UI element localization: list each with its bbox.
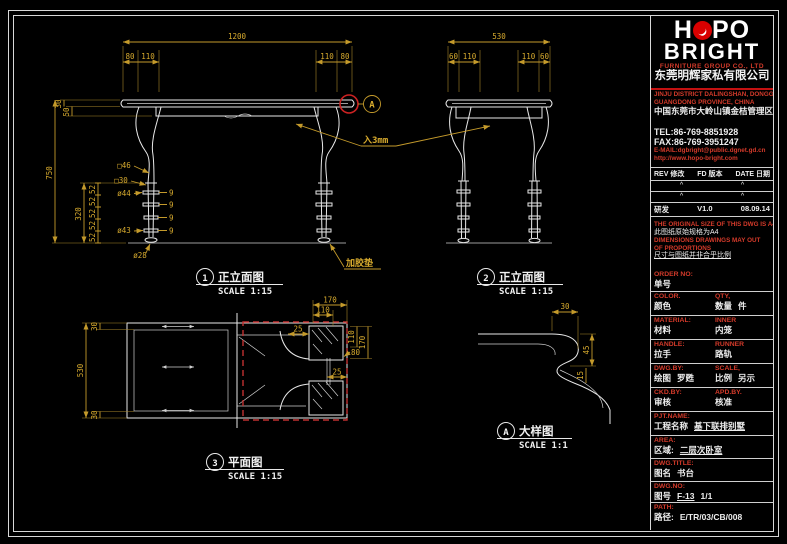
- view-scale: SCALE 1:15: [499, 287, 553, 297]
- runner-label-cn: 路轨: [715, 349, 770, 359]
- scale-label: SCALE,: [715, 365, 770, 373]
- note-line: THE ORIGINAL SIZE OF THIS DWG IS A4: [654, 221, 770, 229]
- dwg-title-label-cn: 图名: [654, 468, 671, 478]
- fax: FAX:86-769-3951247: [654, 137, 770, 147]
- view-title: 正立面图: [499, 270, 545, 284]
- cad-sheet: 1200 80 110 110 80 30 50 750 320 52 52 5…: [0, 0, 787, 544]
- order-no-field: ORDER NO: 单号: [651, 270, 773, 292]
- handle-label-cn: 拉手: [654, 349, 709, 359]
- dim-text: 110: [320, 52, 334, 61]
- dim-text: 30: [90, 322, 99, 332]
- runner-field: RUNNER 路轨: [712, 340, 773, 363]
- revision-empty-row: ^ ^: [651, 181, 773, 192]
- dwg-by-field: DWG.BY: 绘图罗甦: [651, 364, 712, 387]
- dwgby-scale-row: DWG.BY: 绘图罗甦 SCALE, 比例另示: [651, 364, 773, 388]
- view-title: 平面图: [228, 455, 263, 469]
- dim-text: 52: [88, 221, 97, 230]
- note-inset-3mm: 入3mm: [362, 135, 389, 146]
- handle-field: HANDLE: 拉手: [651, 340, 712, 363]
- dim-text: 80: [351, 348, 361, 357]
- path-value: E/TR/03/CB/008: [680, 512, 742, 522]
- side-elevation-view: 530 60 110 110 60 2 正立面图 SCALE 1:15: [446, 32, 563, 297]
- view-number: 3: [212, 459, 217, 469]
- dwg-by-value: 罗甦: [677, 373, 694, 383]
- dim-text: 30: [560, 302, 570, 311]
- address-en-line2: GUANGDONG PROVINCE, CHINA: [654, 99, 770, 107]
- order-no-label-cn: 单号: [654, 279, 770, 289]
- view-scale: SCALE 1:15: [228, 472, 282, 482]
- dwg-by-label: DWG.BY:: [654, 365, 709, 373]
- runner-label: RUNNER: [715, 341, 770, 349]
- scale-label-cn: 比例: [715, 373, 732, 383]
- dim-text: 110: [463, 52, 477, 61]
- path-label-cn: 路径:: [654, 512, 674, 522]
- dim-text: 9: [169, 214, 174, 223]
- dim-text: 52: [88, 185, 97, 194]
- dim-text: 9: [169, 227, 174, 236]
- color-field: COLOR. 颜色: [651, 292, 712, 315]
- detail-circle-red: [340, 95, 358, 113]
- callout-square30: □30: [114, 176, 128, 185]
- dim-text: 1200: [228, 32, 247, 41]
- dim-text: 50: [62, 107, 71, 117]
- material-inner-row: MATERIAL: 材料 INNER 内笼: [651, 316, 773, 340]
- callout-dia28: ø28: [133, 251, 147, 260]
- dim-text: 530: [492, 32, 506, 41]
- dim-text: 110: [316, 306, 330, 315]
- revision-table: REV 修改 FD 版本 DATE 日期 ^ ^ ^ ^ 研发 V1.0 08.…: [651, 168, 773, 220]
- qty-label-cn: 数量: [715, 301, 732, 311]
- company-logo: HPO BRIGHT FURNITURE GROUP CO., LTD 东莞明辉…: [651, 16, 773, 90]
- company-name-cn: 东莞明辉家私有限公司: [654, 70, 770, 83]
- callout-square46: □46: [117, 161, 131, 170]
- view-number: 2: [483, 274, 488, 284]
- path-field: PATH: 路径:E/TR/03/CB/008: [651, 503, 773, 530]
- inner-label-cn: 内笼: [715, 325, 770, 335]
- qty-field: QTY, 数量件: [712, 292, 773, 315]
- revision-header-date: DATE 日期: [736, 169, 770, 179]
- dim-text: 9: [169, 201, 174, 210]
- view-scale: SCALE 1:1: [519, 441, 568, 451]
- dim-text: 60: [449, 52, 459, 61]
- side-left-leg: [450, 107, 471, 243]
- detail-bubble-letter: A: [369, 101, 375, 111]
- leg-block-bottom: [309, 381, 343, 415]
- logo-subtitle: FURNITURE GROUP CO., LTD: [654, 63, 770, 70]
- ckd-by-label: CKD.BY:: [654, 389, 709, 397]
- note-line: 尺寸与图纸并非合乎比例: [654, 252, 770, 261]
- dim-text: 530: [76, 363, 85, 377]
- material-label: MATERIAL:: [654, 317, 709, 325]
- drawing-area: 1200 80 110 110 80 30 50 750 320 52 52 5…: [14, 16, 650, 530]
- company-contact: TEL:86-769-8851928 FAX:86-769-3951247 E-…: [651, 126, 773, 168]
- dim-text: 110: [141, 52, 155, 61]
- callout-dia43: ø43: [117, 226, 131, 235]
- view-scale: SCALE 1:15: [218, 287, 272, 297]
- dwg-title-field: DWG.TITLE: 图名书台: [651, 459, 773, 482]
- color-qty-row: COLOR. 颜色 QTY, 数量件: [651, 292, 773, 316]
- view-number: A: [503, 428, 509, 438]
- note-line: OF PROPORTIONS: [654, 245, 770, 253]
- project-name-label-cn: 工程名称: [654, 421, 688, 431]
- dim-text: 110: [522, 52, 536, 61]
- view-title: 正立面图: [218, 270, 264, 284]
- color-label-cn: 颜色: [654, 301, 709, 311]
- color-label: COLOR.: [654, 293, 709, 301]
- detail-region-dashed: [243, 322, 347, 420]
- address-en-line1: JINJU DISTRICT DALINGSHAN, DONGGUAN: [654, 91, 770, 99]
- dim-text: 60: [540, 52, 550, 61]
- note-line: DIMENSIONS DRAWINGS MAY OUT: [654, 237, 770, 245]
- area-field: AREA: 区域:二层次卧室: [651, 436, 773, 459]
- caret-mark: ^: [741, 192, 744, 202]
- view-title: 大样图: [519, 424, 554, 438]
- revision-entry-rev: 研发: [654, 204, 669, 215]
- note-rubber-pad: 加胶垫: [345, 257, 373, 269]
- dwg-no-field: DWG.NO: 图号F-131/1: [651, 482, 773, 503]
- inner-field: INNER 内笼: [712, 316, 773, 339]
- company-address: JINJU DISTRICT DALINGSHAN, DONGGUAN GUAN…: [651, 90, 773, 126]
- project-name-value: 基下联排别墅: [694, 421, 745, 431]
- caret-mark: ^: [680, 181, 683, 191]
- dwg-no-label-cn: 图号: [654, 491, 671, 501]
- area-value: 二层次卧室: [680, 445, 723, 455]
- ckd-by-label-cn: 审核: [654, 397, 709, 407]
- revision-entry-date: 08.09.14: [741, 204, 770, 215]
- front-left-leg: [136, 107, 161, 242]
- revision-header-rev: REV 修改: [654, 169, 684, 179]
- address-cn: 中国东莞市大岭山镇金桔管理区: [654, 106, 770, 116]
- side-right-leg: [527, 107, 548, 243]
- area-label-cn: 区域:: [654, 445, 674, 455]
- dim-text: 52: [88, 209, 97, 218]
- project-name-field: PJT.NAME: 工程名称基下联排别墅: [651, 412, 773, 436]
- ckd-by-field: CKD.BY: 审核: [651, 388, 712, 411]
- dwg-by-label-cn: 绘图: [654, 373, 671, 383]
- material-label-cn: 材料: [654, 325, 709, 335]
- apron: [156, 107, 318, 116]
- dim-text: 52: [88, 233, 97, 242]
- path-label: PATH:: [654, 504, 770, 512]
- caret-mark: ^: [680, 192, 683, 202]
- dim-text: 15: [576, 371, 585, 380]
- dim-text: 80: [340, 52, 350, 61]
- apd-by-label: APD.BY.: [715, 389, 770, 397]
- dim-text: 25: [332, 368, 341, 377]
- plan-view: 30 530 30 170 110 110 170 80 25 25 3 平面图: [76, 296, 372, 483]
- scale-value: 另示: [738, 373, 755, 383]
- inner-label: INNER: [715, 317, 770, 325]
- dim-text: 320: [74, 207, 83, 221]
- revision-empty-row: ^ ^: [651, 192, 773, 203]
- dim-text: 750: [45, 166, 54, 180]
- dim-text: 170: [323, 296, 337, 305]
- detail-view: 30 45 15 A 大样图 SCALE 1:1: [478, 302, 610, 451]
- view-number: 1: [202, 274, 207, 284]
- dim-text: 9: [169, 189, 174, 198]
- dim-text: 110: [347, 330, 356, 344]
- dim-text: 52: [88, 197, 97, 206]
- area-label: AREA:: [654, 437, 770, 445]
- dim-text: 30: [90, 410, 99, 420]
- logo-bright: BRIGHT: [654, 42, 770, 62]
- front-right-leg: [314, 107, 339, 242]
- dwg-title-label: DWG.TITLE:: [654, 460, 770, 468]
- material-field: MATERIAL: 材料: [651, 316, 712, 339]
- qty-unit: 件: [738, 301, 747, 311]
- order-no-label: ORDER NO:: [654, 271, 770, 279]
- caret-mark: ^: [741, 181, 744, 191]
- apd-by-field: APD.BY. 核准: [712, 388, 773, 411]
- revision-entry-version: V1.0: [697, 204, 712, 215]
- dim-text: 45: [582, 345, 591, 354]
- callout-dia44: ø44: [117, 189, 131, 198]
- dwg-title-value: 书台: [677, 468, 694, 478]
- title-block: HPO BRIGHT FURNITURE GROUP CO., LTD 东莞明辉…: [650, 16, 773, 530]
- dim-text: 80: [125, 52, 135, 61]
- scale-field: SCALE, 比例另示: [712, 364, 773, 387]
- apd-by-label-cn: 核准: [715, 397, 770, 407]
- revision-entry-row: 研发 V1.0 08.09.14: [651, 203, 773, 217]
- dwg-page-value: 1/1: [701, 491, 713, 501]
- note-line: 此图纸原始规格为A4: [654, 229, 770, 238]
- logo-red-dot-icon: [693, 21, 712, 40]
- dwg-no-label: DWG.NO:: [654, 483, 770, 491]
- handle-runner-row: HANDLE: 拉手 RUNNER 路轨: [651, 340, 773, 364]
- dwg-no-value: F-13: [677, 491, 694, 501]
- leg-block-top: [309, 326, 343, 360]
- qty-label: QTY,: [715, 293, 770, 301]
- email: E-MAIL:dgbright@public.dgnet.gd.cn: [654, 147, 770, 155]
- dim-text: 25: [293, 325, 302, 334]
- revision-header: REV 修改 FD 版本 DATE 日期: [651, 168, 773, 181]
- project-name-label: PJT.NAME:: [654, 413, 770, 421]
- website: http://www.hopo-bright.com: [654, 155, 770, 163]
- handle-label: HANDLE:: [654, 341, 709, 349]
- revision-header-fd: FD 版本: [697, 169, 722, 179]
- telephone: TEL:86-769-8851928: [654, 127, 770, 137]
- ckd-apd-row: CKD.BY: 审核 APD.BY. 核准: [651, 388, 773, 412]
- front-elevation-view: 1200 80 110 110 80 30 50 750 320 52 52 5…: [45, 32, 381, 297]
- sheet-notes: THE ORIGINAL SIZE OF THIS DWG IS A4 此图纸原…: [651, 220, 773, 270]
